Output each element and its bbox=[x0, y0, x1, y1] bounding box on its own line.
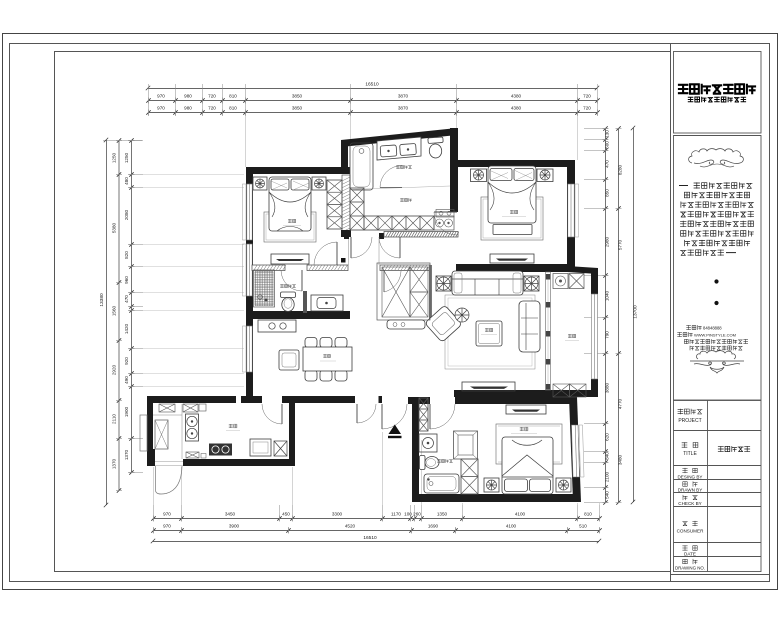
svg-text:1350: 1350 bbox=[437, 512, 448, 517]
svg-text:470: 470 bbox=[605, 160, 610, 168]
svg-text:DRAWN BY: DRAWN BY bbox=[678, 488, 703, 493]
svg-text:3480: 3480 bbox=[618, 454, 623, 465]
svg-text:720: 720 bbox=[208, 94, 216, 99]
svg-text:4770: 4770 bbox=[618, 398, 623, 409]
svg-text:970: 970 bbox=[163, 512, 171, 517]
svg-text:970: 970 bbox=[163, 524, 171, 529]
svg-text:820: 820 bbox=[124, 251, 129, 259]
svg-text:2920: 2920 bbox=[112, 364, 117, 375]
svg-text:810: 810 bbox=[584, 512, 592, 517]
svg-text:3900: 3900 bbox=[229, 524, 240, 529]
svg-text:3870: 3870 bbox=[398, 106, 409, 111]
svg-text:1690: 1690 bbox=[428, 524, 439, 529]
svg-text:DATE: DATE bbox=[684, 552, 696, 557]
svg-text:5380: 5380 bbox=[112, 222, 117, 233]
svg-text:970: 970 bbox=[157, 94, 165, 99]
svg-text:8280: 8280 bbox=[618, 164, 623, 175]
svg-text:810: 810 bbox=[229, 106, 237, 111]
svg-text:3870: 3870 bbox=[398, 94, 409, 99]
svg-text:2980: 2980 bbox=[605, 236, 610, 247]
svg-text:450: 450 bbox=[282, 512, 290, 517]
svg-text:2100: 2100 bbox=[605, 471, 610, 482]
svg-text:100: 100 bbox=[404, 512, 412, 517]
svg-text:CHECK BY: CHECK BY bbox=[678, 501, 702, 506]
svg-text:TITLE: TITLE bbox=[683, 451, 697, 457]
svg-text:720: 720 bbox=[583, 94, 591, 99]
svg-text:84848888: 84848888 bbox=[703, 325, 722, 330]
svg-text:510: 510 bbox=[579, 524, 587, 529]
svg-text:DRAWING NO.: DRAWING NO. bbox=[675, 566, 705, 571]
svg-text:2080: 2080 bbox=[124, 209, 129, 220]
svg-text:1250: 1250 bbox=[124, 152, 129, 163]
svg-text:970: 970 bbox=[157, 106, 165, 111]
svg-text:920: 920 bbox=[124, 357, 129, 365]
svg-text:16510: 16510 bbox=[363, 535, 377, 541]
svg-text:13380: 13380 bbox=[99, 293, 105, 307]
svg-text:3850: 3850 bbox=[292, 106, 303, 111]
svg-text:4100: 4100 bbox=[506, 524, 517, 529]
svg-text:490: 490 bbox=[124, 376, 129, 384]
svg-text:16510: 16510 bbox=[365, 82, 379, 88]
svg-text:4380: 4380 bbox=[511, 94, 522, 99]
svg-text:810: 810 bbox=[229, 94, 237, 99]
svg-text:790: 790 bbox=[605, 331, 610, 339]
svg-text:5770: 5770 bbox=[618, 239, 623, 250]
svg-text:720: 720 bbox=[583, 106, 591, 111]
svg-text:470: 470 bbox=[124, 295, 129, 303]
svg-text:2110: 2110 bbox=[112, 414, 117, 424]
svg-text:980: 980 bbox=[184, 94, 192, 99]
svg-text:4380: 4380 bbox=[511, 106, 522, 111]
svg-text:1370: 1370 bbox=[112, 458, 117, 469]
svg-text:3880: 3880 bbox=[605, 382, 610, 393]
svg-text:500: 500 bbox=[605, 141, 610, 149]
svg-text:4100: 4100 bbox=[515, 512, 526, 517]
svg-text:960: 960 bbox=[124, 276, 129, 284]
svg-text:130: 130 bbox=[605, 130, 610, 138]
svg-text:PROJECT: PROJECT bbox=[678, 418, 701, 424]
svg-text:13700: 13700 bbox=[633, 305, 639, 319]
svg-text:1420: 1420 bbox=[124, 323, 129, 334]
svg-text:480: 480 bbox=[124, 177, 129, 185]
svg-text:WWW.PINSTYLE.COM: WWW.PINSTYLE.COM bbox=[694, 332, 736, 337]
svg-text:DESING BY: DESING BY bbox=[677, 475, 702, 480]
svg-text:1250: 1250 bbox=[112, 152, 117, 163]
svg-text:3850: 3850 bbox=[292, 94, 303, 99]
svg-text:1040: 1040 bbox=[605, 290, 610, 301]
svg-text:850: 850 bbox=[605, 189, 610, 197]
svg-text:1170: 1170 bbox=[391, 512, 401, 517]
svg-text:1560: 1560 bbox=[112, 305, 117, 316]
svg-text:980: 980 bbox=[184, 106, 192, 111]
svg-text:720: 720 bbox=[208, 106, 216, 111]
svg-text:1900: 1900 bbox=[124, 406, 129, 417]
svg-text:540: 540 bbox=[605, 491, 610, 499]
svg-text:620: 620 bbox=[605, 433, 610, 441]
svg-text:CONSUMER: CONSUMER bbox=[677, 529, 704, 534]
svg-text:1370: 1370 bbox=[124, 449, 129, 460]
svg-text:840: 840 bbox=[605, 452, 610, 460]
svg-text:3300: 3300 bbox=[332, 512, 343, 517]
svg-text:3450: 3450 bbox=[225, 512, 236, 517]
svg-text:4520: 4520 bbox=[345, 524, 356, 529]
